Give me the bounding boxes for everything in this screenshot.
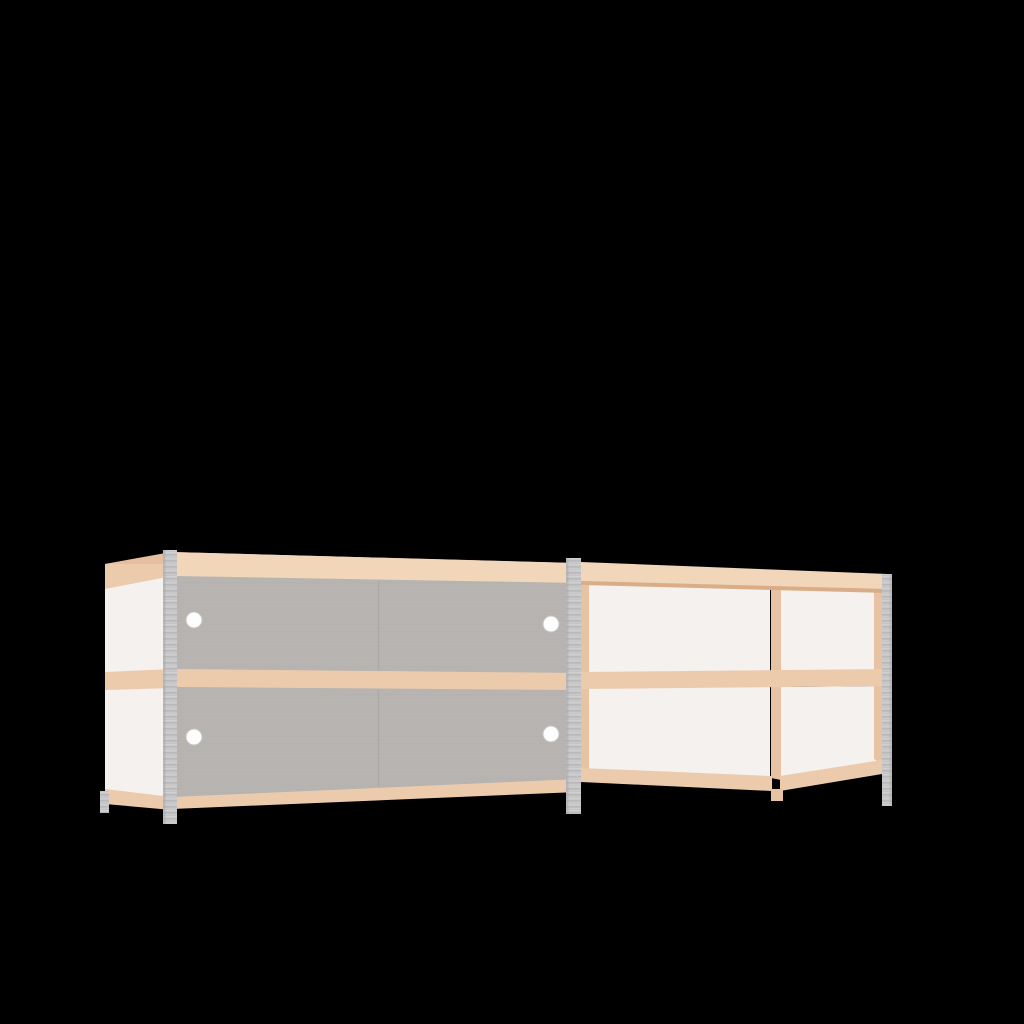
post-back-left-foot [100,791,109,813]
post-middle-edge-shade [566,558,569,814]
finger-hole-top-right [543,616,559,632]
post-front-left-edge-shade [163,550,166,824]
post-right-edge-shade [890,574,893,806]
back-panel-upper-right [779,586,878,675]
side-panel-upper-white [105,572,172,675]
side-middle-rail [105,669,172,690]
back-panel-upper-left [585,581,770,675]
center-divider-foot [771,789,783,801]
background [0,0,1024,1024]
left-cabinet-side-panel [105,552,172,810]
side-panel-lower-white [105,685,172,800]
middle-shelf-band [581,669,888,689]
furniture-render [0,0,1024,1024]
finger-hole-bottom-left [186,729,202,745]
back-panel-lower-left [585,687,770,778]
sliding-door-row-top [177,574,566,675]
render-stage [0,0,1024,1024]
finger-hole-top-left [186,612,202,628]
right-open-shelf-unit [581,562,888,801]
left-cabinet-front [172,552,578,809]
finger-hole-bottom-right [543,726,559,742]
